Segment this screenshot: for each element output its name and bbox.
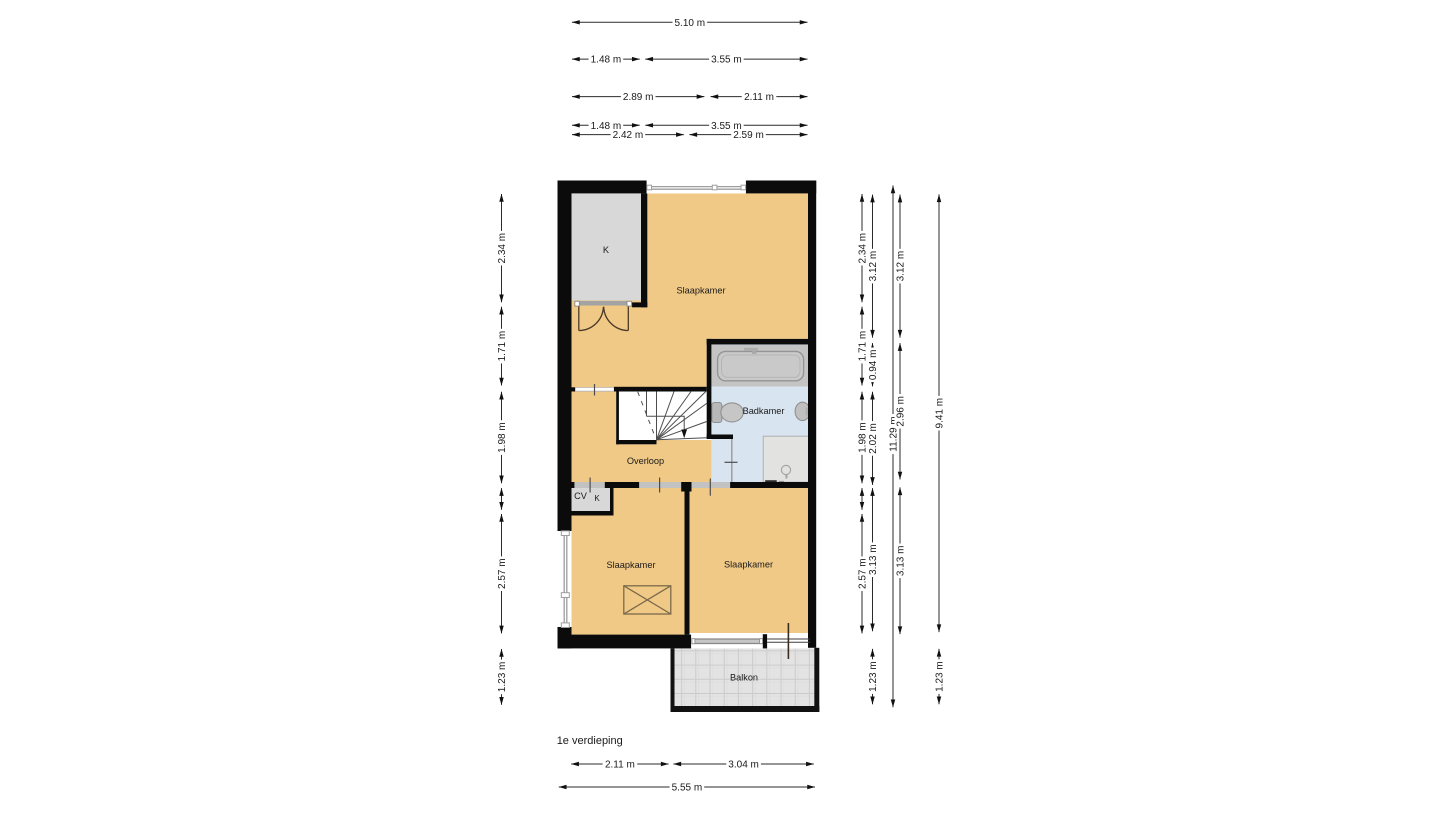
svg-text:1.23 m: 1.23 m <box>497 662 508 693</box>
svg-text:3.55 m: 3.55 m <box>711 55 742 66</box>
svg-text:2.57 m: 2.57 m <box>858 558 869 589</box>
svg-text:2.96 m: 2.96 m <box>896 396 907 427</box>
svg-text:1.23 m: 1.23 m <box>868 661 879 692</box>
svg-text:1.98 m: 1.98 m <box>497 422 508 453</box>
svg-text:2.89 m: 2.89 m <box>623 92 654 103</box>
svg-text:2.59 m: 2.59 m <box>733 130 764 141</box>
svg-text:2.34 m: 2.34 m <box>858 233 869 264</box>
svg-text:2.11 m: 2.11 m <box>744 92 774 103</box>
svg-text:0.94 m: 0.94 m <box>868 350 879 381</box>
svg-text:3.13 m: 3.13 m <box>868 544 879 575</box>
svg-text:2.57 m: 2.57 m <box>497 558 508 589</box>
svg-text:K: K <box>594 494 600 503</box>
svg-text:9.41 m: 9.41 m <box>935 398 946 429</box>
svg-text:Badkamer: Badkamer <box>743 406 785 416</box>
svg-text:Overloop: Overloop <box>627 456 664 466</box>
svg-text:5.55 m: 5.55 m <box>672 783 703 794</box>
svg-text:1e verdieping: 1e verdieping <box>557 735 623 747</box>
svg-text:1.98 m: 1.98 m <box>858 422 869 453</box>
svg-text:Balkon: Balkon <box>730 673 758 683</box>
svg-text:3.13 m: 3.13 m <box>896 546 907 577</box>
svg-text:2.42 m: 2.42 m <box>613 130 644 141</box>
svg-text:3.12 m: 3.12 m <box>896 251 907 282</box>
svg-text:Slaapkamer: Slaapkamer <box>606 560 655 570</box>
svg-text:2.02 m: 2.02 m <box>868 423 879 454</box>
svg-text:3.04 m: 3.04 m <box>728 760 759 771</box>
svg-text:1.71 m: 1.71 m <box>497 331 508 362</box>
svg-text:2.34 m: 2.34 m <box>497 233 508 264</box>
svg-text:5.10 m: 5.10 m <box>675 18 706 29</box>
svg-text:2.11 m: 2.11 m <box>605 760 635 771</box>
svg-text:Slaapkamer: Slaapkamer <box>676 286 725 296</box>
svg-text:Slaapkamer: Slaapkamer <box>724 560 773 570</box>
svg-text:3.12 m: 3.12 m <box>868 251 879 282</box>
svg-text:K: K <box>603 245 610 255</box>
svg-text:CV: CV <box>574 491 588 501</box>
svg-text:1.48 m: 1.48 m <box>591 55 622 66</box>
svg-text:1.23 m: 1.23 m <box>935 661 946 692</box>
